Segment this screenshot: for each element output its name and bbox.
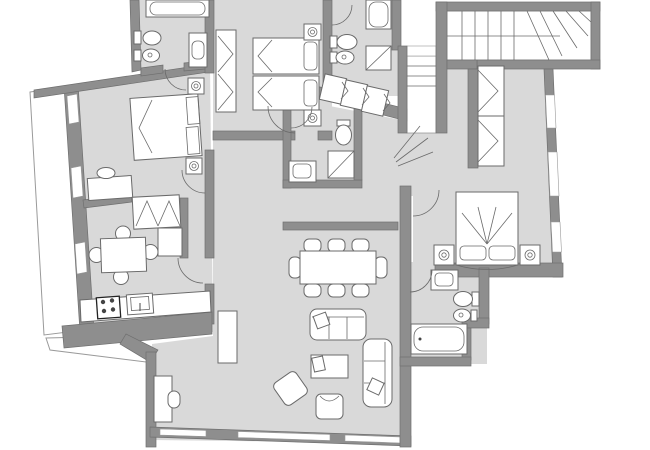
bathtub-2: [366, 0, 391, 29]
stove-burner: [110, 298, 114, 302]
bidet-3-tank: [471, 310, 477, 321]
twin-bed-a: [253, 38, 319, 74]
bidet-1-bowl: [143, 49, 160, 62]
window-balcony-1: [67, 94, 79, 124]
stair-upper-floor: [447, 11, 591, 60]
stove-burner: [101, 300, 105, 304]
toilet-1-bowl: [143, 31, 161, 45]
wall-stair-inner: [436, 2, 447, 133]
window-right-2: [548, 152, 559, 196]
dining-chair: [304, 284, 321, 297]
window-balcony-2: [71, 166, 83, 198]
floorplan-canvas: [0, 0, 650, 450]
twin-bed-b: [253, 76, 319, 110]
nightstand: [434, 245, 454, 265]
dining-table: [300, 251, 376, 284]
dresser-lamp: [97, 168, 115, 179]
hall-cabinet: [158, 228, 182, 256]
wc-toilet-bowl: [336, 125, 352, 145]
window-balcony-3: [75, 242, 87, 274]
nightstand: [304, 110, 321, 126]
floor-plan: [0, 0, 650, 450]
wardrobe-bedroom3: [478, 66, 504, 116]
dining-chair: [352, 239, 369, 252]
bidet-3-bowl: [454, 309, 471, 322]
window-bottom-1: [160, 429, 206, 437]
armchair: [316, 394, 343, 419]
nightstand: [304, 24, 321, 40]
bookcase: [218, 311, 237, 363]
toilet-3-tank: [472, 292, 479, 306]
kitchen-table: [100, 237, 146, 273]
bathtub-1: [146, 0, 209, 17]
bidet-2-bowl: [336, 51, 354, 64]
stair-entry-opening: [407, 46, 436, 56]
wall-bedroom2-bottom-stub: [318, 131, 332, 140]
dining-chair: [352, 284, 369, 297]
bathtub-3-drain: [419, 338, 422, 341]
wall-living-right: [400, 186, 411, 447]
nightstand: [186, 158, 202, 174]
nightstand: [188, 78, 204, 94]
toilet-2-bowl: [337, 35, 357, 50]
dining-chair: [375, 257, 387, 278]
wall-stair-corner: [447, 60, 477, 69]
toilet-1-tank: [134, 31, 141, 44]
wall-stair-top: [436, 2, 600, 11]
wall-bath2-right: [392, 0, 401, 50]
dining-chair: [289, 257, 301, 278]
wall-bedroom3-closet: [468, 69, 478, 168]
dining-chair: [328, 239, 345, 252]
window-right-3: [551, 222, 562, 252]
toilet-3-bowl: [454, 292, 473, 307]
dresser: [87, 175, 132, 200]
wall-stair-flight-left: [398, 46, 407, 133]
wall-dining: [283, 222, 398, 230]
wall-wc-right: [354, 103, 362, 180]
coffee-table-tray: [312, 356, 326, 372]
wall-stair-right: [591, 2, 600, 69]
desk-chair: [168, 391, 180, 408]
wall-bath3-bottom: [400, 357, 471, 366]
toilet-2-tank: [330, 36, 337, 48]
wardrobe-bedroom3: [478, 116, 504, 166]
stove-burner: [111, 307, 115, 311]
double-bed-3: [456, 192, 518, 265]
dining-chair: [328, 284, 345, 297]
dining-chair: [304, 239, 321, 252]
stove-burner: [102, 309, 106, 313]
wall-hall-right-upper: [205, 150, 214, 258]
nightstand: [520, 245, 540, 265]
wall-bath3-right: [479, 268, 489, 324]
sofa-vertical: [363, 339, 392, 407]
stove: [96, 296, 120, 319]
stair-flight-floor: [407, 56, 436, 133]
window-right-1: [546, 95, 557, 128]
bidet-1-tank: [134, 50, 141, 61]
